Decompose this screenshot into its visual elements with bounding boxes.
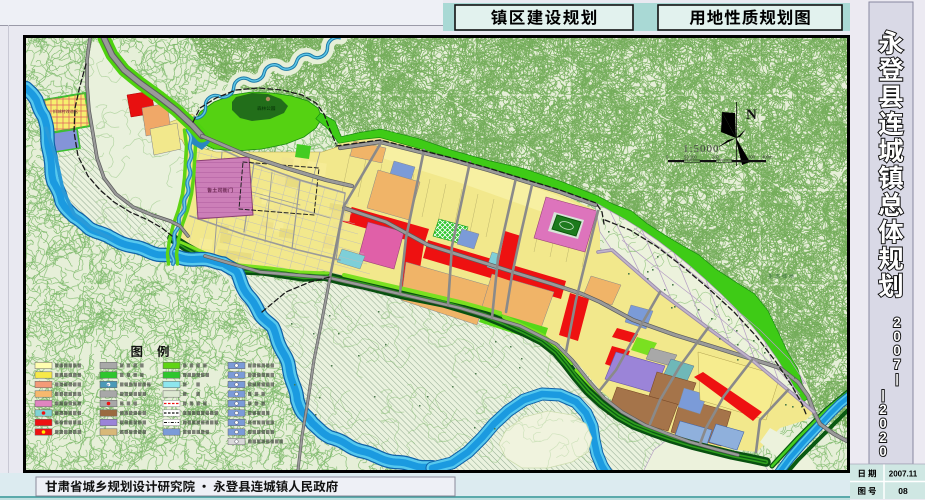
svg-text:08: 08 (898, 486, 908, 496)
svg-text:0: 0 (893, 329, 901, 344)
svg-text:2007.11: 2007.11 (889, 470, 918, 479)
svg-text:|: | (895, 372, 898, 386)
svg-text:1:5000: 1:5000 (683, 143, 720, 155)
svg-text:2: 2 (879, 402, 887, 417)
svg-text:0: 0 (879, 444, 887, 459)
svg-text:2: 2 (893, 315, 901, 330)
svg-text:7: 7 (893, 357, 901, 372)
svg-text:300: 300 (748, 155, 756, 160)
svg-text:0: 0 (879, 416, 887, 431)
svg-text:400m: 400m (762, 155, 773, 160)
svg-text:200: 200 (712, 155, 720, 160)
svg-text:N: N (746, 107, 757, 123)
svg-text:50 100: 50 100 (684, 155, 697, 160)
svg-text:2: 2 (879, 430, 887, 445)
svg-text:|: | (881, 388, 884, 402)
svg-text:0: 0 (893, 343, 901, 358)
